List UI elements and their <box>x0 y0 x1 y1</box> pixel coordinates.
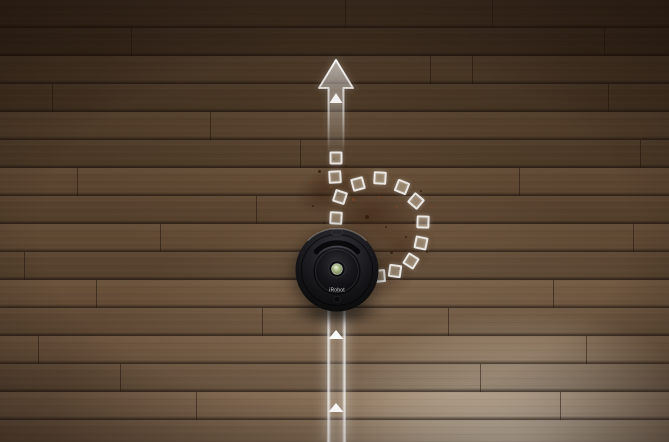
plank-joint <box>492 0 493 28</box>
plank-joint <box>553 280 554 308</box>
clean-button <box>332 264 343 275</box>
product-photo: iRobot <box>0 0 669 442</box>
plank-joint <box>160 224 161 252</box>
plank-joint <box>345 0 346 28</box>
plank-joint <box>586 336 587 364</box>
plank-joint <box>519 168 520 196</box>
plank-joint <box>24 252 25 280</box>
plank-joint <box>633 224 634 252</box>
plank-joint <box>480 364 481 392</box>
robot-brand-text: iRobot <box>329 288 345 294</box>
ir-sensor-window <box>332 230 343 235</box>
plank-joint <box>560 392 561 420</box>
plank-joint <box>256 196 257 224</box>
path-arrow-icon <box>304 54 368 158</box>
plank-joint <box>77 168 78 196</box>
button-highlight <box>334 266 338 268</box>
plank-joint <box>120 364 121 392</box>
plank-joint <box>196 392 197 420</box>
plank-joint <box>604 28 605 56</box>
plank-joint <box>131 28 132 56</box>
plank-joint <box>210 112 211 140</box>
plank-joint <box>640 140 641 168</box>
plank-joint <box>96 280 97 308</box>
plank-joint <box>448 308 449 336</box>
plank-joint <box>38 336 39 364</box>
plank-joint <box>52 84 53 112</box>
camera-sensor <box>334 296 340 302</box>
roomba-robot: iRobot <box>295 228 379 312</box>
plank-joint <box>262 308 263 336</box>
plank-joint <box>430 56 431 84</box>
plank-joint <box>608 84 609 112</box>
plank-joint <box>472 56 473 84</box>
arrow-shape <box>319 60 353 153</box>
